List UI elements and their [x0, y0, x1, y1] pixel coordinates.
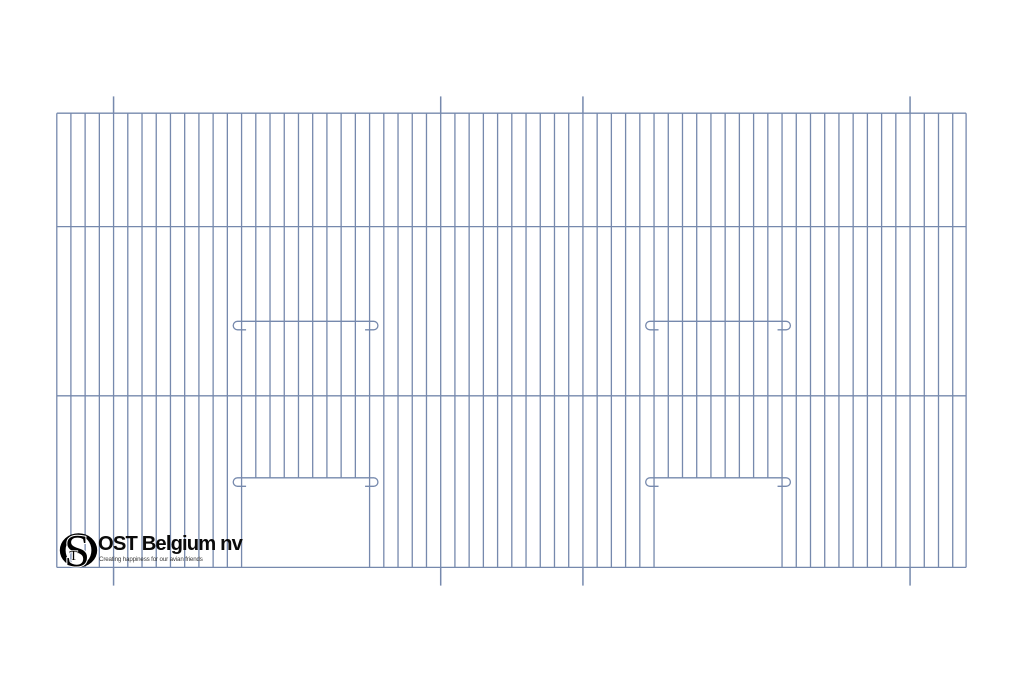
- svg-text:T: T: [69, 548, 78, 563]
